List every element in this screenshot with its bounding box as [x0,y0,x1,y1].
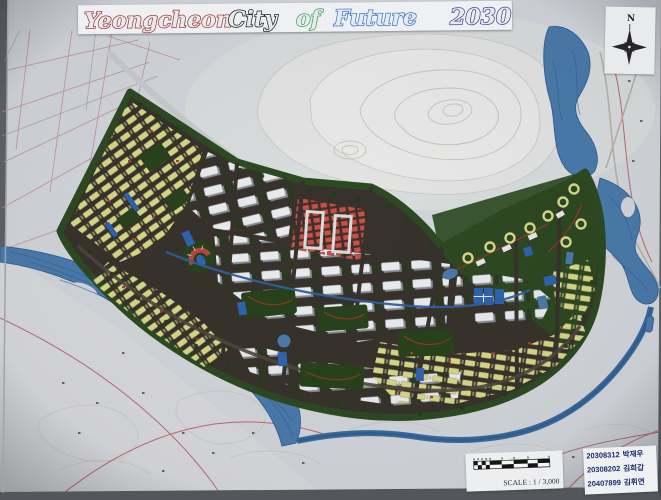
title-word-of: of [296,6,324,32]
compass-north-label: N [627,14,635,24]
student-name: 김휘연 [624,477,645,487]
title-word-future: Future [333,5,417,32]
student-id: 20407899 [587,478,621,488]
title-year-2030: 2030 [449,4,512,31]
student-name: 김희갑 [623,463,644,473]
compass-card: N [604,6,655,74]
student-id: 20308202 [587,464,621,474]
scale-card: SCALE : 1 / 3,000 [465,450,563,491]
photo-vignette [0,0,661,500]
title-banner: Yeongcheon City of Future 2030 [78,1,512,35]
credit-line: 20407899김휘연 [584,474,657,490]
student-name: 박재우 [622,449,643,459]
title-word-yeongcheon: Yeongcheon [84,7,232,35]
student-id: 20308312 [586,450,620,460]
title-word-city: City [228,6,279,33]
scale-bar [465,450,563,477]
masterplan-board-photo: Yeongcheon City of Future 2030 N [0,0,661,500]
compass-rose-icon [611,24,647,66]
scale-label: SCALE : 1 / 3,000 [466,476,559,488]
masterplan-map [0,0,661,500]
credits-card: 20308312박재우 20308202김희갑 20407899김휘연 [583,445,658,494]
